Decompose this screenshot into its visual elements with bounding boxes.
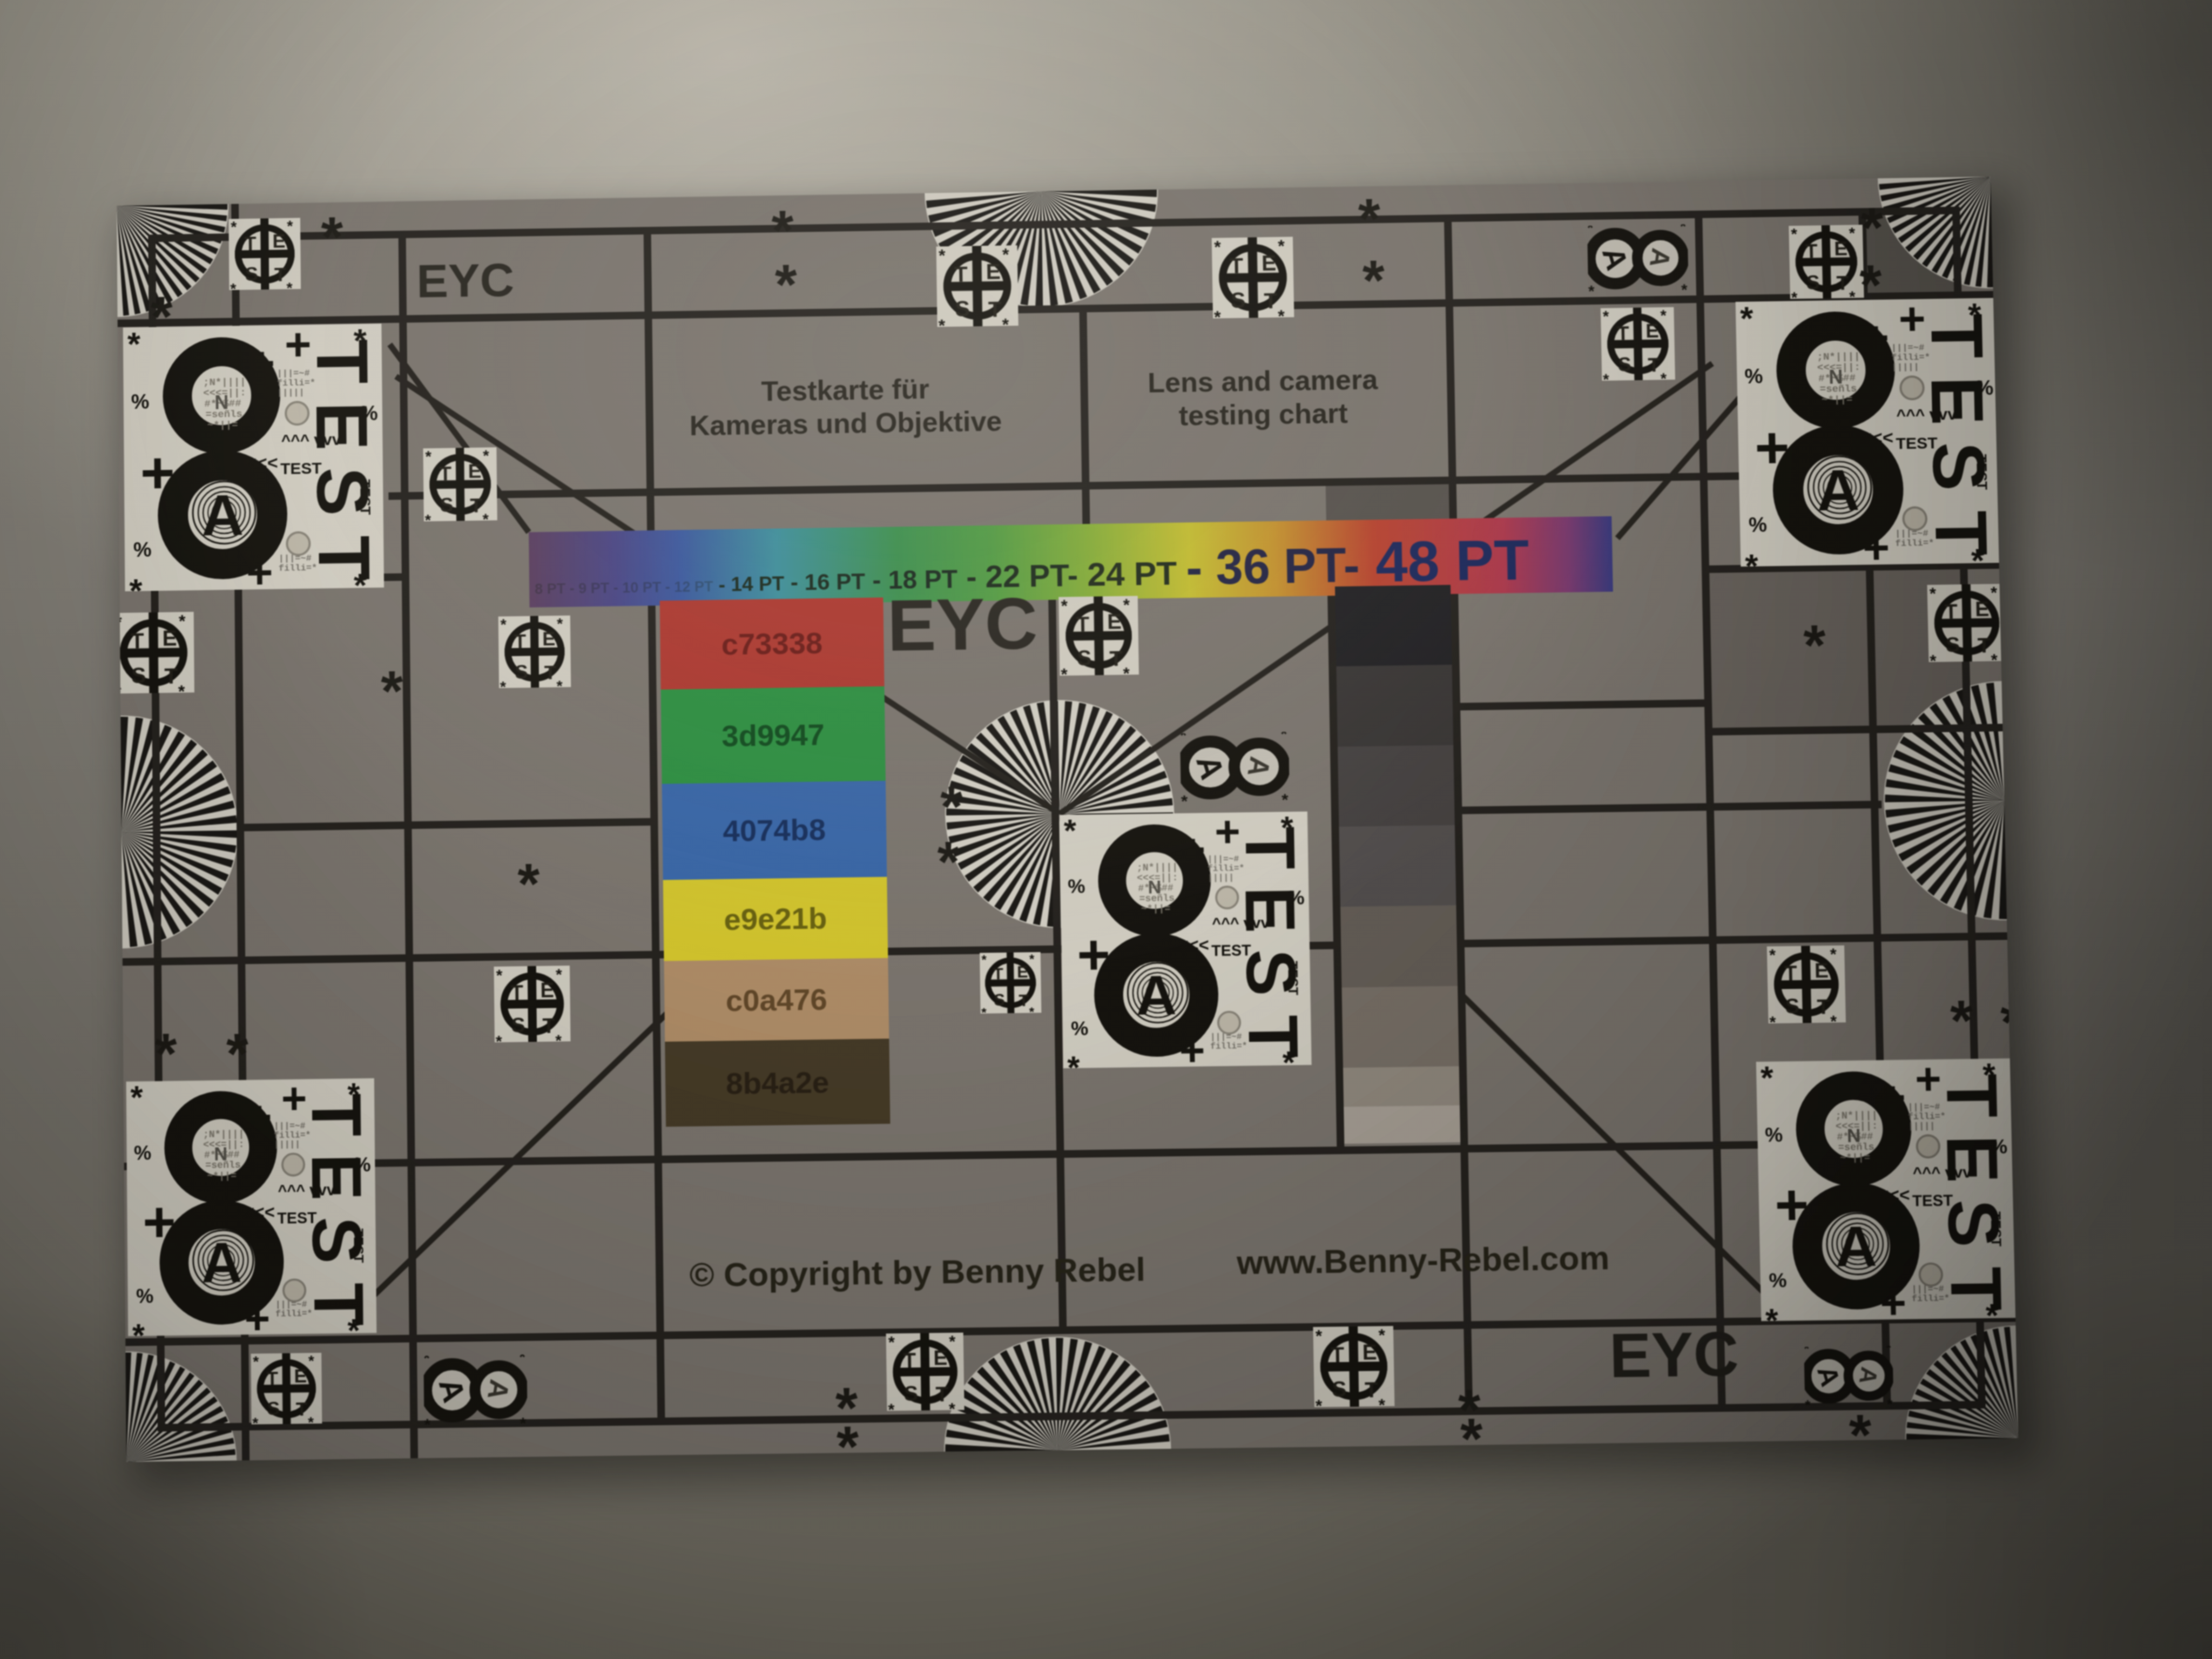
svg-text:filli=*: filli=*: [277, 378, 315, 389]
svg-text:T: T: [303, 535, 384, 581]
svg-text:|||=~#: |||=~#: [1891, 343, 1925, 354]
svg-text:|||||: |||||: [274, 1140, 300, 1150]
svg-text:%: %: [1744, 365, 1763, 388]
svg-text:<<<: <<<: [1861, 427, 1894, 448]
svg-text:%: %: [1071, 1017, 1089, 1040]
svg-text:filli=*: filli=*: [275, 1309, 313, 1319]
svg-text:TEST: TEST: [1988, 1211, 2004, 1246]
svg-text:+: +: [285, 323, 312, 370]
svg-text:*: *: [1968, 296, 1982, 334]
svg-text:*: *: [1982, 1056, 1997, 1093]
svg-text:TEST: TEST: [277, 1209, 317, 1227]
svg-text:+: +: [1879, 1278, 1907, 1324]
svg-text:+: +: [246, 547, 273, 591]
svg-text:|||=~#: |||=~#: [274, 1121, 306, 1131]
svg-text:|||||: |||||: [1208, 873, 1234, 883]
svg-text:%: %: [131, 390, 150, 413]
svg-text:N: N: [1847, 1125, 1861, 1147]
svg-text:*: *: [1740, 300, 1754, 338]
svg-text:N: N: [214, 1144, 227, 1165]
svg-text:T: T: [299, 1283, 376, 1327]
svg-text:^^^ vvv: ^^^ vvv: [278, 1182, 336, 1200]
svg-text:<<<: <<<: [246, 453, 278, 474]
svg-text:+: +: [1215, 812, 1241, 856]
svg-text:+: +: [1077, 922, 1111, 986]
svg-text:%: %: [134, 1142, 152, 1164]
svg-text:+: +: [1862, 522, 1890, 569]
svg-text:%: %: [1769, 1269, 1787, 1292]
svg-text:*: *: [347, 1313, 360, 1342]
svg-text:+: +: [1879, 1073, 1906, 1123]
svg-text:+: +: [281, 1074, 307, 1124]
svg-text:filli=*: filli=*: [1891, 353, 1930, 363]
svg-text:TEST: TEST: [1285, 961, 1300, 995]
svg-text:*: *: [1985, 1297, 1999, 1324]
svg-text:T: T: [1919, 510, 2001, 556]
svg-text:+: +: [1754, 415, 1790, 482]
svg-text:%: %: [1990, 1135, 2008, 1158]
svg-text:filli=*: filli=*: [1895, 538, 1934, 549]
svg-text:+: +: [1774, 1172, 1809, 1238]
svg-text:A: A: [201, 1231, 242, 1294]
svg-text:N: N: [214, 392, 228, 413]
svg-text:TEST: TEST: [1912, 1192, 1953, 1210]
svg-text:^^^ vvv: ^^^ vvv: [1212, 914, 1270, 932]
svg-text:TEST: TEST: [1973, 454, 1990, 490]
svg-text:^^^ vvv: ^^^ vvv: [1913, 1164, 1972, 1182]
svg-text:<<<: <<<: [1878, 1184, 1910, 1205]
svg-text:N: N: [1829, 366, 1843, 388]
svg-text:filli=*: filli=*: [1208, 864, 1245, 874]
svg-text:*: *: [1765, 1302, 1779, 1324]
svg-text:*: *: [130, 1080, 143, 1116]
svg-text:*: *: [1067, 1050, 1080, 1068]
svg-text:%: %: [136, 1285, 154, 1307]
svg-text:filli=*: filli=*: [274, 1130, 311, 1141]
svg-text:%: %: [1975, 376, 1994, 400]
svg-text:^^^ vvv: ^^^ vvv: [1896, 406, 1957, 424]
svg-text:TEST: TEST: [1211, 941, 1251, 959]
svg-text:+: +: [244, 1294, 270, 1343]
svg-text:|||||: |||||: [1908, 1121, 1935, 1131]
svg-text:%: %: [133, 538, 152, 561]
svg-text:TEST: TEST: [1896, 434, 1938, 453]
svg-text:*: *: [129, 572, 143, 591]
svg-text:+: +: [1179, 1026, 1205, 1068]
svg-text:+: +: [1898, 296, 1926, 345]
svg-text:|||=~#: |||=~#: [277, 368, 310, 379]
svg-text:TEST: TEST: [357, 479, 373, 515]
svg-text:~*||=: ~*||=: [207, 1171, 237, 1182]
svg-text:T: T: [1233, 1015, 1313, 1058]
svg-text:A: A: [1835, 1214, 1878, 1278]
svg-text:~*||=: ~*||=: [207, 419, 238, 431]
svg-text:^^^ vvv: ^^^ vvv: [281, 431, 341, 450]
svg-text:+: +: [1179, 825, 1206, 874]
svg-text:~*||=: ~*||=: [1822, 394, 1853, 406]
svg-text:*: *: [132, 1318, 145, 1342]
svg-text:TEST: TEST: [350, 1229, 366, 1263]
svg-text:*: *: [347, 1077, 360, 1112]
svg-text:|||=~#: |||=~#: [1208, 854, 1239, 865]
svg-text:*: *: [1745, 547, 1759, 569]
svg-text:A: A: [1136, 964, 1177, 1027]
svg-text:+: +: [1862, 312, 1890, 363]
svg-text:*: *: [1971, 542, 1985, 569]
svg-text:TEST: TEST: [280, 460, 322, 478]
svg-text:<<<: <<<: [244, 1202, 275, 1222]
svg-text:+: +: [246, 1092, 272, 1142]
svg-text:~*||=: ~*||=: [1840, 1152, 1870, 1164]
svg-text:<<<: <<<: [1178, 935, 1209, 955]
svg-text:%: %: [1765, 1123, 1783, 1146]
svg-text:;N*||||: ;N*||||: [203, 1129, 245, 1141]
svg-text:+: +: [248, 338, 275, 389]
svg-text:A: A: [1816, 457, 1860, 523]
svg-text:;N*||||: ;N*||||: [1835, 1110, 1878, 1122]
svg-text:+: +: [143, 1190, 176, 1254]
svg-text:~*||=: ~*||=: [1141, 903, 1171, 915]
svg-text:%: %: [360, 402, 378, 425]
svg-text:*: *: [1760, 1060, 1774, 1096]
svg-text:*: *: [354, 567, 367, 591]
svg-text:%: %: [1287, 887, 1305, 909]
svg-text:;N*||||: ;N*||||: [1137, 862, 1178, 874]
svg-text:*: *: [1282, 1045, 1295, 1068]
svg-text:filli=*: filli=*: [1210, 1041, 1247, 1051]
svg-text:%: %: [1749, 513, 1768, 536]
svg-text:N: N: [1148, 877, 1161, 898]
svg-text:+: +: [1914, 1056, 1942, 1104]
svg-text:+: +: [140, 440, 175, 507]
svg-text:filli=*: filli=*: [279, 563, 317, 574]
svg-text:%: %: [353, 1154, 371, 1176]
svg-text:*: *: [1280, 812, 1293, 846]
svg-text:T: T: [1935, 1266, 2016, 1311]
svg-text:|||||: |||||: [277, 388, 305, 399]
svg-text:*: *: [127, 326, 141, 363]
svg-text:|||||: |||||: [1891, 362, 1919, 373]
svg-text:*: *: [1063, 813, 1076, 849]
svg-text:%: %: [1068, 875, 1085, 898]
svg-text:filli=*: filli=*: [1912, 1293, 1950, 1304]
svg-text:A: A: [201, 482, 244, 548]
svg-text:*: *: [353, 323, 367, 359]
